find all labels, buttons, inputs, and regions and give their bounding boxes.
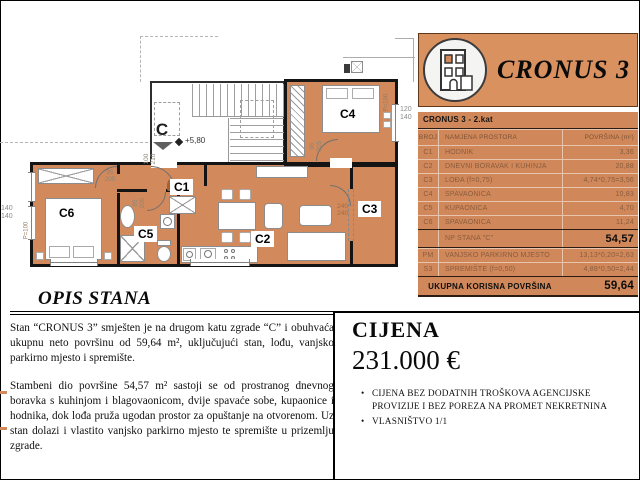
nightstand <box>36 252 44 260</box>
dim-line: 100 <box>143 148 150 170</box>
dim-line: 205 <box>98 176 122 183</box>
cell-povrsina: 13,13*0,20=2,63 <box>562 249 638 262</box>
context-dashed-line <box>140 36 218 37</box>
chair <box>239 232 251 243</box>
cell-povrsina: 4,88*0,50=2,44 <box>562 263 638 276</box>
sink-basin <box>204 250 212 258</box>
room-label-c5: C5 <box>134 226 157 242</box>
room-label-c3: C3 <box>358 201 381 217</box>
cell-broj: C3 <box>418 174 438 187</box>
price-amount: 231.000 € <box>352 345 632 375</box>
table-total-row: UKUPNA KORISNA POVRŠINA59,64 <box>418 276 638 297</box>
table-row: C4SPAVAONICA10,83 <box>418 187 638 201</box>
window-bottom-kitchen <box>190 259 250 266</box>
pillow <box>326 88 348 99</box>
cell-povrsina: 11,24 <box>562 216 638 229</box>
stair-divider-line <box>228 118 229 163</box>
coffee-table <box>299 205 332 226</box>
cell-broj: PM <box>418 249 438 262</box>
closet <box>169 196 196 214</box>
loggia-slider-line <box>348 189 349 241</box>
window-bottom-c6 <box>50 259 98 266</box>
entrance-door-dimension: 100210 <box>143 148 157 170</box>
dim-line: 205 <box>316 135 323 157</box>
room-label-c6: C6 <box>55 205 78 221</box>
loggia-slider-line <box>353 189 354 241</box>
room-label-c1: C1 <box>170 179 193 195</box>
corridor-dashed-line <box>0 142 148 143</box>
cell-namjena: HODNIK <box>438 146 562 159</box>
cell-povrsina: 20,88 <box>562 160 638 173</box>
c6-door-dimension: 95205 <box>98 169 122 183</box>
dim-line: 205 <box>139 192 146 214</box>
dim-line: 140 <box>1 213 18 221</box>
window-left-dimension: 140140 <box>1 205 18 220</box>
dim-line: 140 <box>1 205 18 213</box>
wardrobe <box>38 168 94 184</box>
context-wall-segment <box>344 64 350 73</box>
cell-namjena: SPAVAONICA <box>438 216 562 229</box>
cell-namjena: VANJSKO PARKIRNO MJESTO <box>438 249 562 262</box>
table-subtotal-row: NP STANA "C"54,57 <box>418 229 638 248</box>
pillow <box>352 88 374 99</box>
cell-povrsina: 4,74*0,75=3,56 <box>562 174 638 187</box>
context-column <box>351 61 363 73</box>
wall-segment <box>204 162 207 186</box>
dim-line: 120 <box>400 106 418 114</box>
dim-line: 85 <box>132 192 139 214</box>
c5-door-dimension: 85205 <box>132 192 146 214</box>
brand-banner: CRONUS 3 <box>418 33 638 107</box>
c4-door-dimension: 95205 <box>309 135 323 157</box>
price-left-rule <box>333 311 335 480</box>
subtotal-value: 54,57 <box>562 230 638 247</box>
column-header-namjena: NAMJENA PROSTORA <box>438 130 562 145</box>
total-label: UKUPNA KORISNA POVRŠINA <box>418 277 562 295</box>
edge-tick <box>0 427 7 430</box>
cell-broj: C6 <box>418 216 438 229</box>
pillow <box>73 246 94 258</box>
parapet-left-dimension: P=100 <box>24 219 33 243</box>
washing-machine-door <box>163 217 172 226</box>
cell-povrsina: 3,36 <box>562 146 638 159</box>
cell-namjena: SPAVAONICA <box>438 188 562 201</box>
dim-line: 95 <box>98 169 122 176</box>
table-row: C3LOĐA (f=0,75)4,74*0,75=3,56 <box>418 173 638 187</box>
core-label: C <box>148 121 176 138</box>
cell-namjena: LOĐA (f=0,75) <box>438 174 562 187</box>
nightstand <box>104 252 112 260</box>
description-divider <box>10 311 333 315</box>
table-row: C1HODNIK3,36 <box>418 145 638 159</box>
table-row: PMVANJSKO PARKIRNO MJESTO13,13*0,20=2,63 <box>418 248 638 262</box>
cell-broj: S3 <box>418 263 438 276</box>
column-header-broj: BROJ <box>418 130 438 145</box>
total-value: 59,64 <box>562 277 638 295</box>
cell-broj: C2 <box>418 160 438 173</box>
elevation-label: +5,80 <box>185 136 205 145</box>
price-note: CIJENA BEZ DODATNIH TROŠKOVA AGENCIJSKE … <box>372 388 632 413</box>
price-title: CIJENA <box>352 318 632 342</box>
context-wall-line <box>343 57 415 58</box>
flyer-page: C +5,80 <box>0 0 640 480</box>
cell-namjena: SPREMIŠTE (f=0,50) <box>438 263 562 276</box>
cell-broj <box>418 230 438 247</box>
armchair <box>264 203 283 229</box>
context-wall-line <box>395 38 414 39</box>
wall-segment <box>350 165 353 189</box>
chair <box>239 189 251 200</box>
table-row: C5KUPAONICA4,70 <box>418 201 638 215</box>
cell-namjena: DNEVNI BORAVAK I KUHINJA <box>438 160 562 173</box>
table-row: S3SPREMIŠTE (f=0,50)4,88*0,50=2,44 <box>418 262 638 276</box>
cell-povrsina: 10,83 <box>562 188 638 201</box>
table-row: C6SPAVAONICA11,24 <box>418 215 638 229</box>
window-right-c4 <box>392 104 399 142</box>
window-left-upper <box>28 172 35 202</box>
dim-line: 240 <box>331 203 348 210</box>
edge-tick <box>0 391 7 394</box>
description-paragraphs: Stan “CRONUS 3” smješten je na drugom ka… <box>10 321 334 467</box>
dim-line: 240 <box>331 210 348 217</box>
cell-namjena: KUPAONICA <box>438 202 562 215</box>
table-header-row: BROJ NAMJENA PROSTORA POVRŠINA (m²) <box>418 129 638 145</box>
table-row: C2DNEVNI BORAVAK I KUHINJA20,88 <box>418 159 638 173</box>
wardrobe <box>290 85 305 157</box>
parapet-right-dimension: P=100 <box>384 91 393 115</box>
price-note: VLASNIŠTVO 1/1 <box>372 416 632 429</box>
cell-povrsina: 4,70 <box>562 202 638 215</box>
price-block: CIJENA 231.000 € CIJENA BEZ DODATNIH TRO… <box>352 318 632 432</box>
room-label-c2: C2 <box>251 231 274 247</box>
hob-burner <box>231 249 235 253</box>
building-logo <box>423 38 487 102</box>
hob-burner <box>224 249 228 253</box>
core-label-text: C <box>156 120 168 139</box>
pillow <box>49 246 70 258</box>
stair-opening-dashed <box>240 100 274 138</box>
brand-name: CRONUS 3 <box>497 55 630 85</box>
cell-broj: C1 <box>418 146 438 159</box>
description-paragraph: Stambeni dio površine 54,57 m² sastoji s… <box>10 379 334 454</box>
context-wall-line <box>413 38 414 82</box>
dim-line: 95 <box>309 135 316 157</box>
toilet <box>157 246 171 262</box>
dim-line: 210 <box>150 148 157 170</box>
window-right-dimension: 120140 <box>400 106 418 121</box>
loggia-door-dimension: 240240 <box>331 203 348 217</box>
description-title: OPIS STANA <box>38 288 151 310</box>
cell-broj: C4 <box>418 188 438 201</box>
area-table: CRONUS 3 - 2.kat BROJ NAMJENA PROSTORA P… <box>418 112 638 297</box>
sofa <box>287 232 346 261</box>
description-paragraph: Stan “CRONUS 3” smješten je na drugom ka… <box>10 321 334 366</box>
chair <box>221 232 233 243</box>
price-top-rule <box>333 311 639 314</box>
table-title: CRONUS 3 - 2.kat <box>418 112 638 129</box>
dim-line: 140 <box>400 114 418 122</box>
chair <box>221 189 233 200</box>
dining-table <box>218 202 256 230</box>
building-icon <box>436 48 474 92</box>
cell-broj: C5 <box>418 202 438 215</box>
column-header-povrsina: POVRŠINA (m²) <box>562 130 638 145</box>
nightstand <box>383 121 391 128</box>
oven-dial <box>186 251 193 258</box>
tv-bench <box>256 166 308 178</box>
wall-segment <box>350 241 353 264</box>
context-dashed-line <box>140 36 141 82</box>
subtotal-label: NP STANA "C" <box>438 230 562 247</box>
price-notes: CIJENA BEZ DODATNIH TROŠKOVA AGENCIJSKE … <box>352 388 632 429</box>
room-label-c4: C4 <box>336 106 359 122</box>
